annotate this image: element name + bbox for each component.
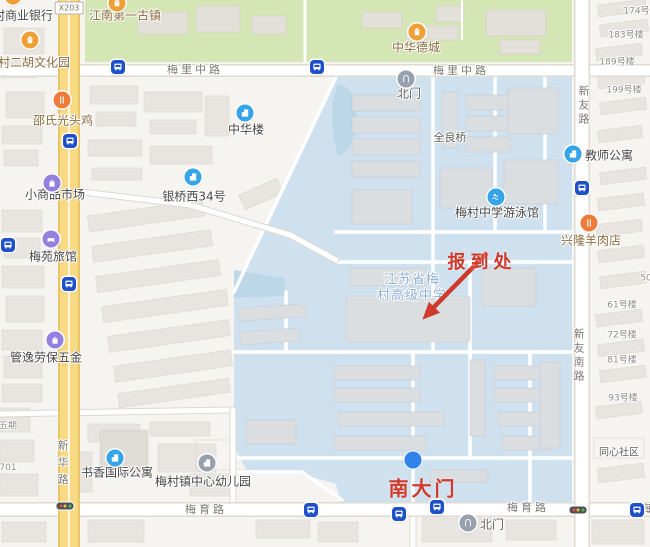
gate-icon-north-gate-top[interactable] <box>398 71 415 88</box>
poi-label-jiangnan-ancient-town: 江南第一古镇 <box>89 7 161 24</box>
bus-stop-icon[interactable] <box>392 507 406 521</box>
restaurant-icon-shaoshi-chicken[interactable] <box>54 92 71 109</box>
building-icon-zhonghualou[interactable] <box>237 105 254 122</box>
bus-stop-icon[interactable] <box>575 181 589 195</box>
unit-label-81: 81号楼 <box>607 353 636 366</box>
road-label-xinyou-south: 新友南路 <box>570 328 586 384</box>
poi-label-north-gate-top: 北门 <box>397 85 421 102</box>
partial-label-wuqi: 五期 <box>0 419 17 432</box>
poi-label-north-gate-bottom: 北门 <box>480 516 504 533</box>
unit-label-50: 50号楼 <box>640 271 650 284</box>
poi-label-erhu-culture-park: 梅村二胡文化园 <box>0 54 70 71</box>
road-label-meili-2: 梅里中路 <box>433 62 489 78</box>
gate-icon-north-gate-bottom[interactable] <box>460 515 477 532</box>
kindergarten-icon-meicun-central[interactable] <box>199 455 216 472</box>
south-gate-annotation: 南大门 <box>389 473 458 502</box>
poi-label-meiyuan-hotel: 梅苑旅馆 <box>29 248 77 265</box>
school-name-line1: 江苏省梅 <box>377 272 447 288</box>
bus-stop-icon[interactable] <box>63 134 77 148</box>
traffic-light-icon <box>570 507 587 514</box>
bridge-label-quanliang: 全良桥 <box>434 129 467 145</box>
unit-label-183: 183号楼 <box>608 28 643 41</box>
road-label-xinhua: 新华路 <box>54 440 70 491</box>
community-label-tongxin: 同心社区 <box>599 444 639 459</box>
bus-stop-icon[interactable] <box>430 500 444 514</box>
traffic-light-icon <box>57 503 74 510</box>
swimming-pool-icon-meicun-natatorium[interactable] <box>488 189 505 206</box>
unit-label-72: 72号楼 <box>607 328 636 341</box>
road-shield-x203: X203 <box>55 2 84 15</box>
map-canvas[interactable]: X203 梅里中路 梅里中路 梅育路 梅育路 梅 新友路 新友南路 新华路 江南… <box>0 0 650 547</box>
restaurant-icon-xinglong-lamb[interactable] <box>581 215 598 232</box>
unit-label-93: 93号楼 <box>608 391 637 404</box>
poi-label-shaoshi-chicken: 邵氏光头鸡 <box>33 112 93 129</box>
building-icon-teachers-apartment[interactable] <box>565 146 582 163</box>
school-area-label: 江苏省梅 村高级中学 <box>377 272 447 303</box>
unit-label-189: 189号楼 <box>599 55 634 68</box>
building-icon-yinqiaoxi-34[interactable] <box>185 169 202 186</box>
poi-label-zhonghua-decheng: 中华德城 <box>392 39 440 56</box>
poi-label-xinglong-lamb: 兴隆羊肉店 <box>561 232 621 249</box>
bus-stop-icon[interactable] <box>630 503 644 517</box>
poi-label-zhonghualou: 中华楼 <box>228 121 264 138</box>
hotel-icon-meiyuan-hotel[interactable] <box>43 231 60 248</box>
south-gate-marker-dot[interactable] <box>405 452 422 469</box>
road-label-meili-1: 梅里中路 <box>167 61 223 77</box>
unit-label-174: 174号楼 <box>623 4 650 17</box>
market-icon-small-commodity-market[interactable] <box>44 175 61 192</box>
registration-annotation: 报到处 <box>448 248 517 274</box>
poi-label-yinqiaoxi-34: 银桥西34号 <box>162 188 225 205</box>
poi-label-commercial-bank: 村商业银行 <box>0 7 53 24</box>
bus-stop-icon[interactable] <box>111 60 125 74</box>
building-icon-shuxiang-apartment[interactable] <box>107 450 124 467</box>
road-label-meiyu-1: 梅育路 <box>185 501 227 517</box>
poi-label-teachers-apartment: 教师公寓 <box>585 147 633 164</box>
store-icon-guanyi-hardware[interactable] <box>47 332 64 349</box>
attraction-icon-zhonghua-decheng[interactable] <box>409 24 426 41</box>
bus-stop-icon[interactable] <box>62 277 76 291</box>
school-name-line2: 村高级中学 <box>377 288 447 304</box>
bus-stop-icon[interactable] <box>310 60 324 74</box>
road-label-meiyu-2: 梅育路 <box>507 499 549 515</box>
poi-label-meicun-natatorium: 梅村中学游泳馆 <box>455 204 539 221</box>
partial-label-701: 701 <box>0 463 17 473</box>
unit-label-61: 61号楼 <box>607 298 636 311</box>
poi-label-meicun-kindergarten: 梅村镇中心幼儿园 <box>155 473 251 490</box>
bus-stop-icon[interactable] <box>1 238 15 252</box>
unit-label-199: 199号楼 <box>606 83 641 96</box>
road-label-xinyou: 新友路 <box>575 85 591 127</box>
attraction-icon-erhu-culture-park[interactable] <box>22 32 39 49</box>
bus-stop-icon[interactable] <box>304 503 318 517</box>
poi-label-guanyi-hardware: 管逸劳保五金 <box>10 349 82 366</box>
